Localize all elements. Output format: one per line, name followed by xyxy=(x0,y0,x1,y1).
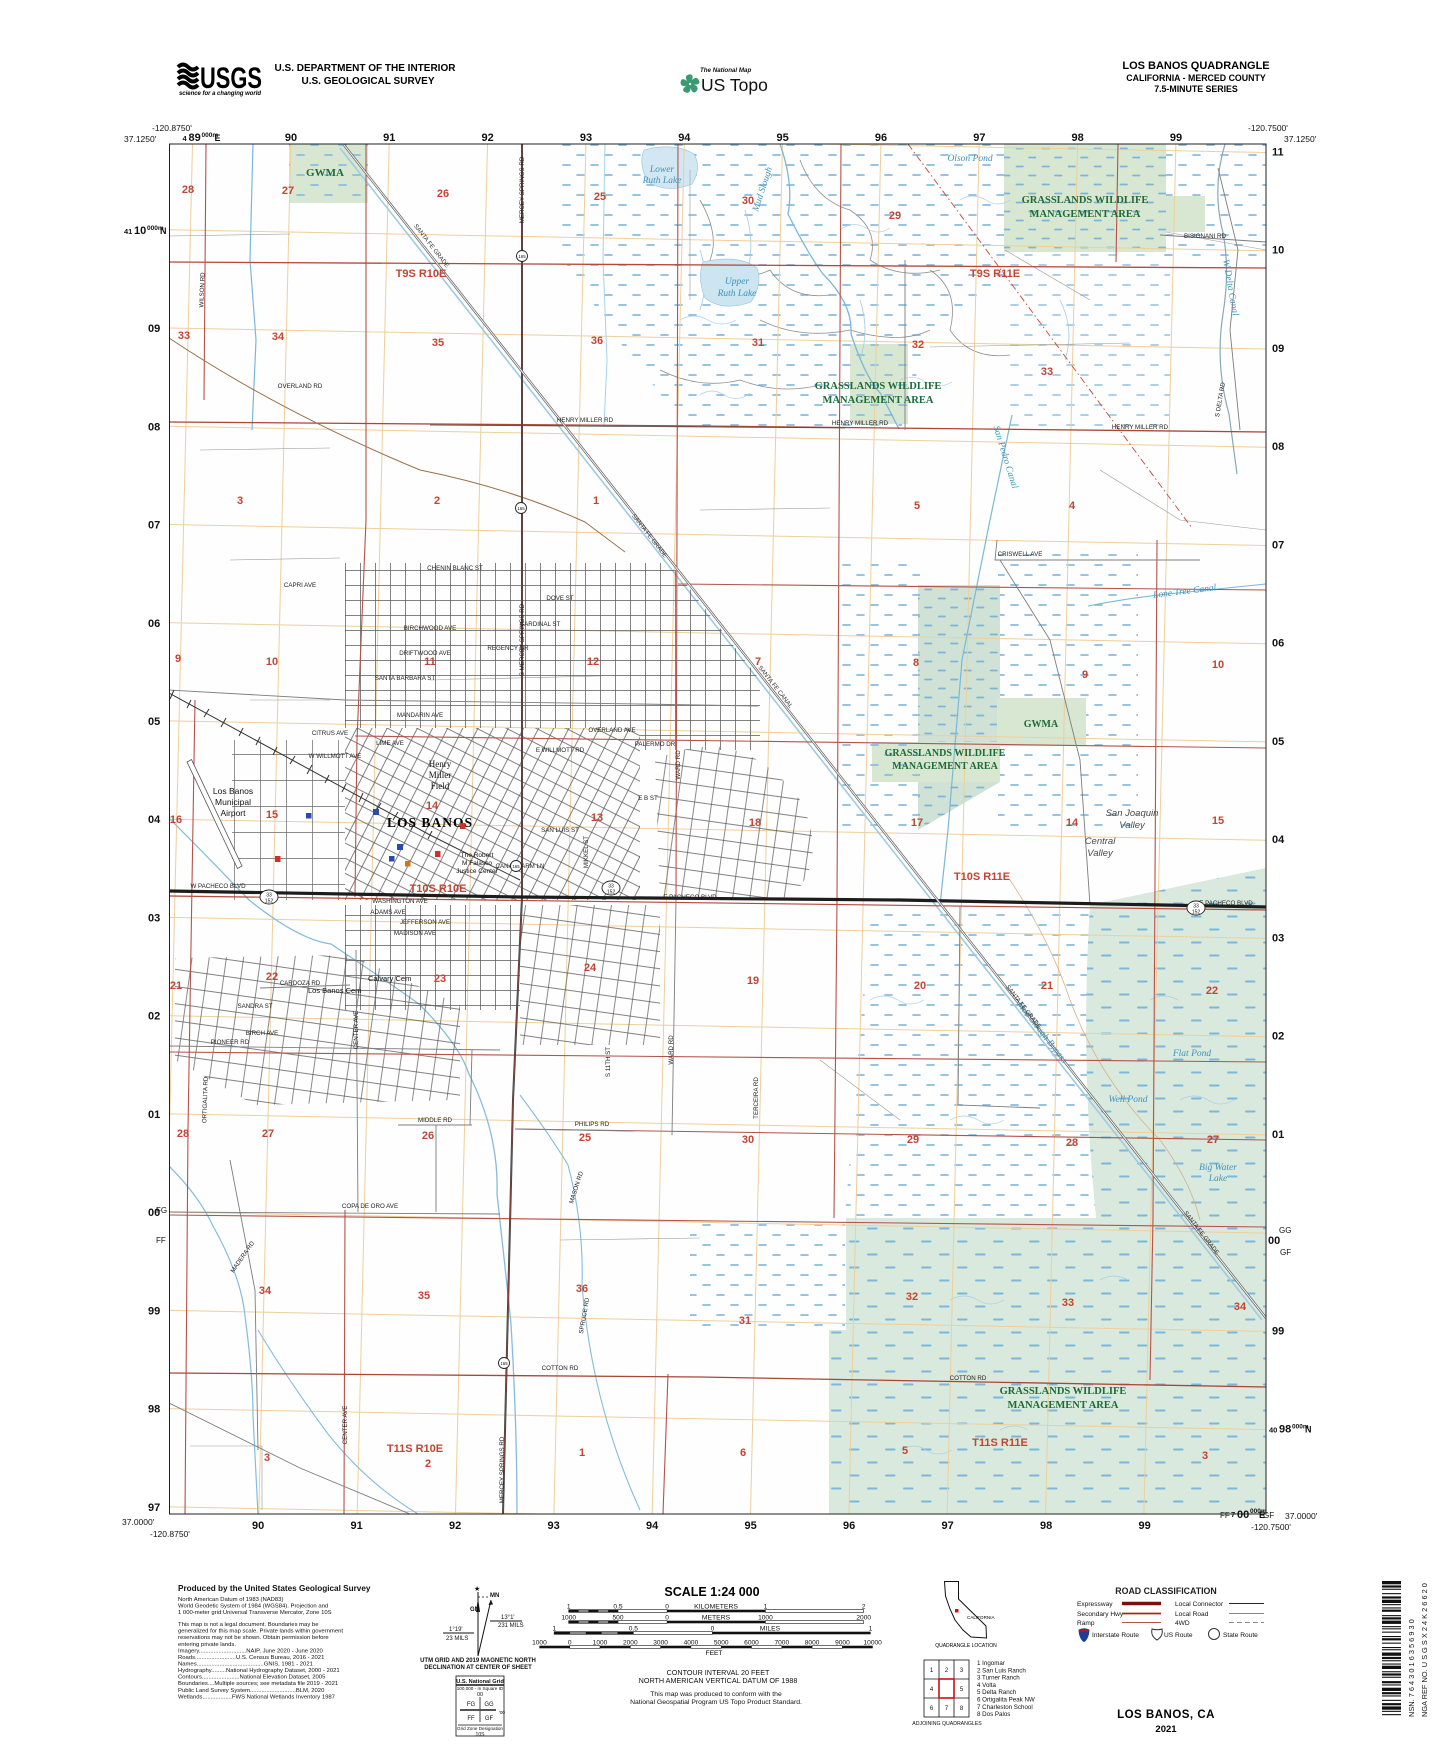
svg-text:PALERMO DR: PALERMO DR xyxy=(635,741,676,748)
svg-text:Hydrography.........National: Hydrography.........National Hydrography… xyxy=(178,1668,340,1674)
svg-text:99: 99 xyxy=(1272,1325,1284,1337)
svg-text:FG: FG xyxy=(467,1702,476,1708)
svg-text:Imagery.......................: Imagery.............................NAIP… xyxy=(178,1649,324,1655)
svg-text:North American Datum of 1983 (: North American Datum of 1983 (NAD83) xyxy=(178,1597,283,1603)
svg-text:96: 96 xyxy=(843,1520,855,1532)
svg-text:Olson Pond: Olson Pond xyxy=(947,154,992,164)
svg-text:Contours......................: Contours.......................National … xyxy=(178,1675,326,1681)
svg-text:1: 1 xyxy=(579,1447,585,1459)
svg-text:Lake: Lake xyxy=(1208,1174,1227,1184)
svg-text:Field: Field xyxy=(431,781,450,791)
svg-text:LOS BANOS QUADRANGLE: LOS BANOS QUADRANGLE xyxy=(1122,60,1269,72)
svg-text:DRIFTWOOD AVE: DRIFTWOOD AVE xyxy=(399,650,450,657)
svg-text:US Route: US Route xyxy=(1164,1632,1193,1639)
svg-text:MILES: MILES xyxy=(760,1626,781,1633)
svg-text:-120.7500': -120.7500' xyxy=(1248,123,1288,133)
svg-text:21: 21 xyxy=(1041,980,1053,992)
svg-text:NGA REF NO. U S G S X 2 4 K 2: NGA REF NO. U S G S X 2 4 K 2 6 6 2 0 xyxy=(1420,1583,1429,1717)
svg-text:1°19': 1°19' xyxy=(449,1627,463,1633)
svg-text:-120.8750': -120.8750' xyxy=(150,1529,190,1539)
svg-text:97: 97 xyxy=(973,132,985,144)
svg-text:4: 4 xyxy=(1069,500,1076,512)
svg-text:science for a changing world: science for a changing world xyxy=(179,90,262,97)
svg-text:METERS: METERS xyxy=(702,1615,731,1622)
svg-text:34: 34 xyxy=(1234,1301,1247,1313)
svg-text:Flat Pond: Flat Pond xyxy=(1172,1049,1212,1059)
svg-text:Wetlands..................FWS: Wetlands..................FWS National W… xyxy=(178,1694,335,1700)
svg-text:World Geodetic System of 1984: World Geodetic System of 1984 (WGS84). P… xyxy=(178,1604,328,1610)
svg-text:Big Water: Big Water xyxy=(1199,1163,1237,1173)
svg-text:Valley: Valley xyxy=(1087,848,1114,859)
svg-text:GG: GG xyxy=(1279,1226,1291,1235)
svg-text:HENRY MILLER RD: HENRY MILLER RD xyxy=(832,420,889,427)
svg-text:N: N xyxy=(160,226,167,236)
svg-text:W PACHECO BLVD: W PACHECO BLVD xyxy=(190,883,246,890)
svg-text:25: 25 xyxy=(579,1132,591,1144)
svg-text:1: 1 xyxy=(593,495,599,507)
svg-text:COTTON RD: COTTON RD xyxy=(542,1365,579,1372)
svg-text:93: 93 xyxy=(580,132,592,144)
svg-text:10: 10 xyxy=(266,656,278,668)
svg-text:Names.........................: Names...................................… xyxy=(178,1662,313,1668)
svg-text:04: 04 xyxy=(148,814,161,826)
svg-text:CENTER AVE: CENTER AVE xyxy=(353,1011,360,1050)
svg-text:165: 165 xyxy=(517,506,525,511)
svg-text:31: 31 xyxy=(752,337,764,349)
svg-text:This map is not a legal docume: This map is not a legal document. Bounda… xyxy=(178,1622,319,1628)
svg-text:MADISON AVE: MADISON AVE xyxy=(394,930,436,937)
svg-text:05: 05 xyxy=(1272,736,1284,748)
svg-text:-120.8750': -120.8750' xyxy=(152,123,192,133)
svg-text:ADAMS AVE: ADAMS AVE xyxy=(370,909,405,916)
svg-text:'00: '00 xyxy=(499,1710,505,1715)
svg-text:6 Ortigalita Peak NW: 6 Ortigalita Peak NW xyxy=(977,1697,1035,1704)
svg-text:18: 18 xyxy=(749,817,761,829)
svg-text:The National Map: The National Map xyxy=(700,67,751,74)
svg-text:03: 03 xyxy=(1272,932,1284,944)
svg-text:WILSON RD: WILSON RD xyxy=(198,272,206,308)
svg-text:GWMA: GWMA xyxy=(306,167,344,179)
svg-text:FF: FF xyxy=(156,1236,166,1245)
svg-text:152: 152 xyxy=(1192,910,1201,916)
svg-text:14: 14 xyxy=(426,800,439,812)
svg-text:GN: GN xyxy=(470,1607,479,1613)
svg-text:4 Volta: 4 Volta xyxy=(977,1682,996,1689)
svg-text:7.5-MINUTE SERIES: 7.5-MINUTE SERIES xyxy=(1154,84,1238,94)
svg-text:35: 35 xyxy=(432,337,444,349)
svg-text:13°1': 13°1' xyxy=(501,1615,515,1621)
svg-text:GG: GG xyxy=(484,1702,494,1708)
svg-text:NSN. 7 6 4 3 0 1 6 3 5 6 9 3: NSN. 7 6 4 3 0 1 6 3 5 6 9 3 0 xyxy=(1407,1619,1416,1717)
svg-text:99: 99 xyxy=(148,1305,160,1317)
svg-text:10: 10 xyxy=(1212,659,1224,671)
svg-text:00: 00 xyxy=(1237,1509,1249,1521)
svg-text:MANAGEMENT AREA: MANAGEMENT AREA xyxy=(892,761,998,772)
svg-text:05: 05 xyxy=(148,716,160,728)
svg-text:98: 98 xyxy=(1279,1424,1291,1436)
svg-text:E PACHECO BLVD: E PACHECO BLVD xyxy=(1199,900,1253,907)
svg-text:3 Turner Ranch: 3 Turner Ranch xyxy=(977,1675,1020,1682)
svg-text:LOS BANOS, CA: LOS BANOS, CA xyxy=(1117,1709,1215,1721)
svg-text:37.0000': 37.0000' xyxy=(122,1517,155,1527)
svg-text:Grid Zone Designation: Grid Zone Designation xyxy=(457,1726,503,1731)
svg-text:DECLINATION AT CENTER OF SHEET: DECLINATION AT CENTER OF SHEET xyxy=(424,1665,532,1671)
svg-text:CRISWELL AVE: CRISWELL AVE xyxy=(998,551,1043,558)
svg-text:★: ★ xyxy=(474,1585,480,1593)
svg-text:HENRY MILLER RD: HENRY MILLER RD xyxy=(557,417,614,424)
svg-text:This map was produced to confo: This map was produced to conform with th… xyxy=(650,1691,782,1698)
svg-text:FG: FG xyxy=(156,1206,167,1215)
svg-text:WARD RD: WARD RD xyxy=(675,750,682,780)
svg-text:ADJOINING QUADRANGLES: ADJOINING QUADRANGLES xyxy=(912,1721,982,1727)
svg-text:MERCEY SPRINGS RD: MERCEY SPRINGS RD xyxy=(519,156,526,223)
svg-text:Municipal: Municipal xyxy=(215,797,251,807)
svg-text:DOVE ST: DOVE ST xyxy=(546,595,573,602)
svg-text:Secondary Hwy: Secondary Hwy xyxy=(1077,1611,1124,1618)
svg-text:E WILLMOTT RD: E WILLMOTT RD xyxy=(536,747,585,754)
svg-text:WASHINGTON AVE: WASHINGTON AVE xyxy=(372,898,428,905)
svg-text:1000: 1000 xyxy=(532,1640,547,1647)
svg-text:Public Land Survey System..: Public Land Survey System...............… xyxy=(178,1688,325,1694)
svg-text:SAN LUIS ST: SAN LUIS ST xyxy=(541,827,579,834)
svg-text:E PACHECO BLVD: E PACHECO BLVD xyxy=(663,894,717,901)
svg-text:Los Banos Cem: Los Banos Cem xyxy=(308,986,361,995)
svg-text:Upper: Upper xyxy=(725,277,750,287)
svg-text:152: 152 xyxy=(265,899,274,905)
svg-text:5: 5 xyxy=(914,500,920,512)
svg-text:90: 90 xyxy=(285,132,297,144)
svg-text:04: 04 xyxy=(1272,834,1285,846)
svg-text:CAPRI AVE: CAPRI AVE xyxy=(284,582,316,589)
svg-text:33: 33 xyxy=(178,330,190,342)
svg-text:21: 21 xyxy=(170,980,182,992)
svg-text:PHILIPS RD: PHILIPS RD xyxy=(575,1121,610,1128)
svg-text:94: 94 xyxy=(646,1520,659,1532)
svg-text:E B ST: E B ST xyxy=(638,795,658,802)
svg-text:Los Banos: Los Banos xyxy=(213,786,253,796)
svg-text:07: 07 xyxy=(148,520,160,532)
svg-text:Boundaries....Multiple source: Boundaries....Multiple sources; see meta… xyxy=(178,1681,338,1687)
svg-text:09: 09 xyxy=(1272,343,1284,355)
svg-text:30: 30 xyxy=(742,1134,754,1146)
svg-text:92: 92 xyxy=(449,1520,461,1532)
svg-text:31: 31 xyxy=(739,1315,751,1327)
svg-text:06: 06 xyxy=(148,618,160,630)
svg-text:00: 00 xyxy=(477,1692,483,1698)
svg-text:GRASSLANDS WILDLIFE: GRASSLANDS WILDLIFE xyxy=(1000,1386,1127,1397)
svg-text:15: 15 xyxy=(266,809,278,821)
svg-text:JEFFERSON AVE: JEFFERSON AVE xyxy=(400,919,450,926)
svg-text:27: 27 xyxy=(262,1128,274,1140)
svg-text:14: 14 xyxy=(1066,817,1079,829)
svg-text:Valley: Valley xyxy=(1119,820,1146,831)
svg-text:T9S R11E: T9S R11E xyxy=(970,268,1020,280)
svg-text:165: 165 xyxy=(500,1361,508,1366)
svg-text:25: 25 xyxy=(594,191,606,203)
svg-text:94: 94 xyxy=(678,132,691,144)
svg-text:23: 23 xyxy=(434,973,446,985)
svg-text:The Robert: The Robert xyxy=(461,852,494,859)
svg-text:08: 08 xyxy=(148,421,160,433)
svg-text:10: 10 xyxy=(134,225,146,237)
svg-text:Central: Central xyxy=(1085,836,1117,847)
svg-text:89: 89 xyxy=(189,132,201,144)
svg-text:Miller: Miller xyxy=(429,770,452,780)
svg-text:MANAGEMENT AREA: MANAGEMENT AREA xyxy=(823,395,934,406)
svg-text:15: 15 xyxy=(1212,815,1224,827)
svg-text:4WD: 4WD xyxy=(1175,1620,1190,1627)
svg-text:28: 28 xyxy=(177,1128,189,1140)
svg-text:01: 01 xyxy=(1272,1129,1284,1141)
svg-text:1 000-meter grid:Universal Tra: 1 000-meter grid:Universal Transverse Me… xyxy=(178,1610,332,1616)
svg-text:5 Delta Ranch: 5 Delta Ranch xyxy=(977,1689,1017,1696)
svg-text:26: 26 xyxy=(422,1130,434,1142)
svg-text:MIDDLE RD: MIDDLE RD xyxy=(418,1117,453,1124)
svg-text:28: 28 xyxy=(182,184,194,196)
svg-text:34: 34 xyxy=(272,331,285,343)
svg-text:WARD RD: WARD RD xyxy=(668,1035,675,1065)
svg-text:COPA DE ORO AVE: COPA DE ORO AVE xyxy=(342,1203,398,1210)
svg-text:08: 08 xyxy=(1272,441,1284,453)
svg-text:MIKKEL ST: MIKKEL ST xyxy=(583,836,590,868)
svg-text:U.S. DEPARTMENT OF THE INTERIO: U.S. DEPARTMENT OF THE INTERIOR xyxy=(275,63,457,74)
svg-text:16: 16 xyxy=(170,814,182,826)
svg-text:36: 36 xyxy=(591,335,603,347)
svg-text:KILOMETERS: KILOMETERS xyxy=(694,1604,738,1611)
svg-text:CHENIN BLANC ST: CHENIN BLANC ST xyxy=(427,565,483,572)
svg-text:T10S R11E: T10S R11E xyxy=(954,871,1010,883)
svg-text:U.S. National Grid: U.S. National Grid xyxy=(456,1679,504,1685)
svg-text:US Topo: US Topo xyxy=(701,75,768,95)
svg-text:95: 95 xyxy=(777,132,789,144)
svg-text:CENTER AVE: CENTER AVE xyxy=(342,1406,349,1445)
svg-text:10000: 10000 xyxy=(864,1640,883,1647)
svg-text:36: 36 xyxy=(576,1283,588,1295)
svg-text:6: 6 xyxy=(740,1447,746,1459)
svg-text:13: 13 xyxy=(591,812,603,824)
svg-text:Ruth Lake: Ruth Lake xyxy=(642,176,682,186)
svg-text:GF: GF xyxy=(485,1716,494,1722)
svg-text:SANTA BARBARA ST: SANTA BARBARA ST xyxy=(375,675,436,682)
svg-text:152: 152 xyxy=(607,890,616,896)
svg-text:37.0000': 37.0000' xyxy=(1285,1511,1318,1521)
svg-text:29: 29 xyxy=(907,1134,919,1146)
svg-text:S MERCEY SPRINGS RD: S MERCEY SPRINGS RD xyxy=(519,603,526,676)
svg-text:19: 19 xyxy=(747,975,759,987)
svg-text:91: 91 xyxy=(351,1520,363,1532)
svg-text:Henry: Henry xyxy=(429,759,452,769)
svg-text:33: 33 xyxy=(1062,1297,1074,1309)
svg-text:ROAD CLASSIFICATION: ROAD CLASSIFICATION xyxy=(1115,1586,1217,1596)
svg-text:28: 28 xyxy=(1066,1137,1078,1149)
svg-text:BIRCHWOOD AVE: BIRCHWOOD AVE xyxy=(404,625,456,632)
svg-text:9: 9 xyxy=(1082,669,1088,681)
svg-text:97: 97 xyxy=(148,1502,160,1514)
svg-text:98: 98 xyxy=(148,1404,160,1416)
svg-text:GF: GF xyxy=(1263,1511,1274,1520)
svg-text:07: 07 xyxy=(1272,539,1284,551)
svg-text:OVERLAND RD: OVERLAND RD xyxy=(278,383,323,390)
svg-text:BISIGNANI RD: BISIGNANI RD xyxy=(1184,233,1226,240)
svg-text:N: N xyxy=(1305,1425,1312,1435)
svg-text:Expressway: Expressway xyxy=(1077,1601,1113,1608)
svg-text:entering private lands.: entering private lands. xyxy=(178,1642,236,1648)
svg-text:11: 11 xyxy=(424,656,436,668)
svg-text:37.1250': 37.1250' xyxy=(1284,134,1317,144)
svg-text:OVERLAND AVE: OVERLAND AVE xyxy=(588,727,635,734)
svg-text:HENRY MILLER RD: HENRY MILLER RD xyxy=(1112,424,1169,431)
svg-text:Lower: Lower xyxy=(649,165,675,175)
svg-text:GRASSLANDS WILDLIFE: GRASSLANDS WILDLIFE xyxy=(1022,195,1149,206)
svg-text:SANDRA ST: SANDRA ST xyxy=(237,1003,272,1010)
svg-text:99: 99 xyxy=(1139,1520,1151,1532)
svg-text:26: 26 xyxy=(437,188,449,200)
svg-text:BIRCH AVE: BIRCH AVE xyxy=(246,1030,279,1037)
svg-text:QUADRANGLE LOCATION: QUADRANGLE LOCATION xyxy=(935,1643,997,1649)
svg-text:3: 3 xyxy=(237,495,243,507)
svg-text:90: 90 xyxy=(252,1520,264,1532)
svg-text:165: 165 xyxy=(518,254,526,259)
svg-text:Produced by the United States: Produced by the United States Geological… xyxy=(178,1584,371,1593)
svg-text:3: 3 xyxy=(264,1452,270,1464)
svg-text:MANAGEMENT AREA: MANAGEMENT AREA xyxy=(1008,1400,1119,1411)
svg-text:CARDOZA RD: CARDOZA RD xyxy=(280,980,321,987)
svg-text:LIME AVE: LIME AVE xyxy=(376,740,404,747)
svg-text:REGENCY DR: REGENCY DR xyxy=(487,645,529,652)
svg-text:02: 02 xyxy=(1272,1031,1284,1043)
svg-text:Interstate Route: Interstate Route xyxy=(1092,1632,1139,1639)
svg-text:T10S R10E: T10S R10E xyxy=(410,883,467,895)
svg-text:41: 41 xyxy=(124,227,132,236)
svg-text:T9S R10E: T9S R10E xyxy=(396,268,447,280)
svg-text:GWMA: GWMA xyxy=(1024,719,1059,730)
svg-text:92: 92 xyxy=(482,132,494,144)
svg-text:Ramp: Ramp xyxy=(1077,1620,1095,1627)
svg-text:Calvary Cem: Calvary Cem xyxy=(368,974,411,983)
svg-text:SCALE 1:24 000: SCALE 1:24 000 xyxy=(664,1585,759,1599)
svg-text:M Falasco: M Falasco xyxy=(462,860,492,867)
svg-text:MN: MN xyxy=(490,1593,499,1599)
svg-text:98: 98 xyxy=(1040,1520,1052,1532)
svg-text:GRASSLANDS WILDLIFE: GRASSLANDS WILDLIFE xyxy=(885,748,1006,759)
svg-text:1: 1 xyxy=(869,1626,873,1633)
svg-text:9: 9 xyxy=(175,653,181,665)
svg-text:34: 34 xyxy=(259,1285,272,1297)
svg-text:E: E xyxy=(215,133,221,143)
svg-text:10: 10 xyxy=(1272,245,1284,257)
svg-text:T11S R11E: T11S R11E xyxy=(972,1437,1028,1449)
svg-text:NORTH AMERICAN VERTICAL DATUM: NORTH AMERICAN VERTICAL DATUM OF 1988 xyxy=(639,1676,798,1685)
svg-text:Roads.........................: Roads.........................U.S. Censu… xyxy=(178,1655,324,1661)
svg-text:10S: 10S xyxy=(476,1732,486,1738)
svg-text:2: 2 xyxy=(425,1458,431,1470)
svg-text:09: 09 xyxy=(148,323,160,335)
svg-text:MANAGEMENT AREA: MANAGEMENT AREA xyxy=(1030,209,1141,220)
svg-text:Well Pond: Well Pond xyxy=(1109,1095,1148,1105)
svg-text:91: 91 xyxy=(383,132,395,144)
svg-text:97: 97 xyxy=(942,1520,954,1532)
svg-text:U.S. GEOLOGICAL SURVEY: U.S. GEOLOGICAL SURVEY xyxy=(302,76,435,87)
svg-text:W WILLMOTT AVE: W WILLMOTT AVE xyxy=(309,753,362,760)
svg-text:100,000 - m Square ID: 100,000 - m Square ID xyxy=(457,1686,504,1691)
svg-text:00: 00 xyxy=(1268,1235,1280,1247)
svg-text:22: 22 xyxy=(1206,985,1218,997)
svg-text:06: 06 xyxy=(1272,638,1284,650)
svg-text:96: 96 xyxy=(875,132,887,144)
svg-text:8 Dos Palos: 8 Dos Palos xyxy=(977,1711,1010,1718)
svg-text:State Route: State Route xyxy=(1223,1632,1258,1639)
svg-text:231 MILS: 231 MILS xyxy=(498,1623,524,1629)
svg-text:01: 01 xyxy=(148,1109,160,1121)
svg-text:3: 3 xyxy=(1202,1450,1208,1462)
svg-text:reservations may not be shown.: reservations may not be shown. Obtain pe… xyxy=(178,1635,329,1641)
svg-text:2 San Luis Ranch: 2 San Luis Ranch xyxy=(977,1667,1026,1674)
svg-text:12: 12 xyxy=(587,656,599,668)
svg-text:FF: FF xyxy=(467,1716,475,1722)
svg-text:8: 8 xyxy=(913,657,919,669)
svg-text:37.1250': 37.1250' xyxy=(124,134,157,144)
svg-text:17: 17 xyxy=(911,817,923,829)
svg-text:FEET: FEET xyxy=(706,1650,723,1657)
svg-text:CARDINAL ST: CARDINAL ST xyxy=(520,621,561,628)
svg-text:Ruth Lake: Ruth Lake xyxy=(717,289,757,299)
svg-text:32: 32 xyxy=(906,1291,918,1303)
svg-text:GRASSLANDS WILDLIFE: GRASSLANDS WILDLIFE xyxy=(815,381,942,392)
svg-text:32: 32 xyxy=(912,339,924,351)
svg-text:San Joaquin: San Joaquin xyxy=(1106,808,1159,819)
svg-text:40: 40 xyxy=(1269,1426,1277,1435)
svg-text:99: 99 xyxy=(1170,132,1182,144)
svg-text:27: 27 xyxy=(282,185,294,197)
svg-text:MANDARIN AVE: MANDARIN AVE xyxy=(397,712,443,719)
svg-text:03: 03 xyxy=(148,912,160,924)
svg-text:GF: GF xyxy=(1280,1248,1291,1257)
svg-text:95: 95 xyxy=(745,1520,757,1532)
svg-text:7: 7 xyxy=(1231,1510,1235,1519)
svg-text:20: 20 xyxy=(914,980,926,992)
svg-text:23 MILS: 23 MILS xyxy=(446,1636,468,1642)
svg-text:COTTON RD: COTTON RD xyxy=(950,1375,987,1382)
svg-text:11: 11 xyxy=(1272,147,1284,159)
svg-text:Justice Center: Justice Center xyxy=(456,868,498,875)
svg-text:7 Charleston School: 7 Charleston School xyxy=(977,1704,1033,1711)
svg-text:FF: FF xyxy=(1220,1511,1230,1520)
svg-text:UTM GRID AND 2019 MAGNETIC NOR: UTM GRID AND 2019 MAGNETIC NORTH xyxy=(420,1658,536,1664)
svg-text:-120.7500': -120.7500' xyxy=(1251,1522,1291,1532)
svg-text:165: 165 xyxy=(512,864,520,869)
svg-text:CITRUS AVE: CITRUS AVE xyxy=(312,730,348,737)
svg-text:CALIFORNIA - MERCED COUNTY: CALIFORNIA - MERCED COUNTY xyxy=(1126,73,1266,83)
svg-text:29: 29 xyxy=(889,210,901,222)
svg-text:T11S R10E: T11S R10E xyxy=(387,1443,443,1455)
svg-text:33: 33 xyxy=(1041,366,1053,378)
svg-text:1 Ingomar: 1 Ingomar xyxy=(977,1660,1005,1667)
svg-text:2: 2 xyxy=(434,495,440,507)
svg-text:Local Connector: Local Connector xyxy=(1175,1601,1224,1608)
svg-text:27: 27 xyxy=(1207,1134,1219,1146)
svg-text:Airport: Airport xyxy=(220,808,246,818)
svg-text:35: 35 xyxy=(418,1290,430,1302)
svg-text:02: 02 xyxy=(148,1011,160,1023)
svg-text:TERCEIRA RD: TERCEIRA RD xyxy=(753,1077,760,1119)
svg-text:CALIFORNIA: CALIFORNIA xyxy=(967,1615,996,1620)
svg-text:Local Road: Local Road xyxy=(1175,1611,1209,1618)
svg-text:98: 98 xyxy=(1072,132,1084,144)
svg-text:2021: 2021 xyxy=(1155,1724,1177,1735)
svg-text:S 11TH ST: S 11TH ST xyxy=(605,1047,612,1077)
svg-text:generalized for this map scale: generalized for this map scale. Private … xyxy=(178,1629,343,1635)
svg-text:MERCEY SPRINGS RD: MERCEY SPRINGS RD xyxy=(499,1436,506,1503)
